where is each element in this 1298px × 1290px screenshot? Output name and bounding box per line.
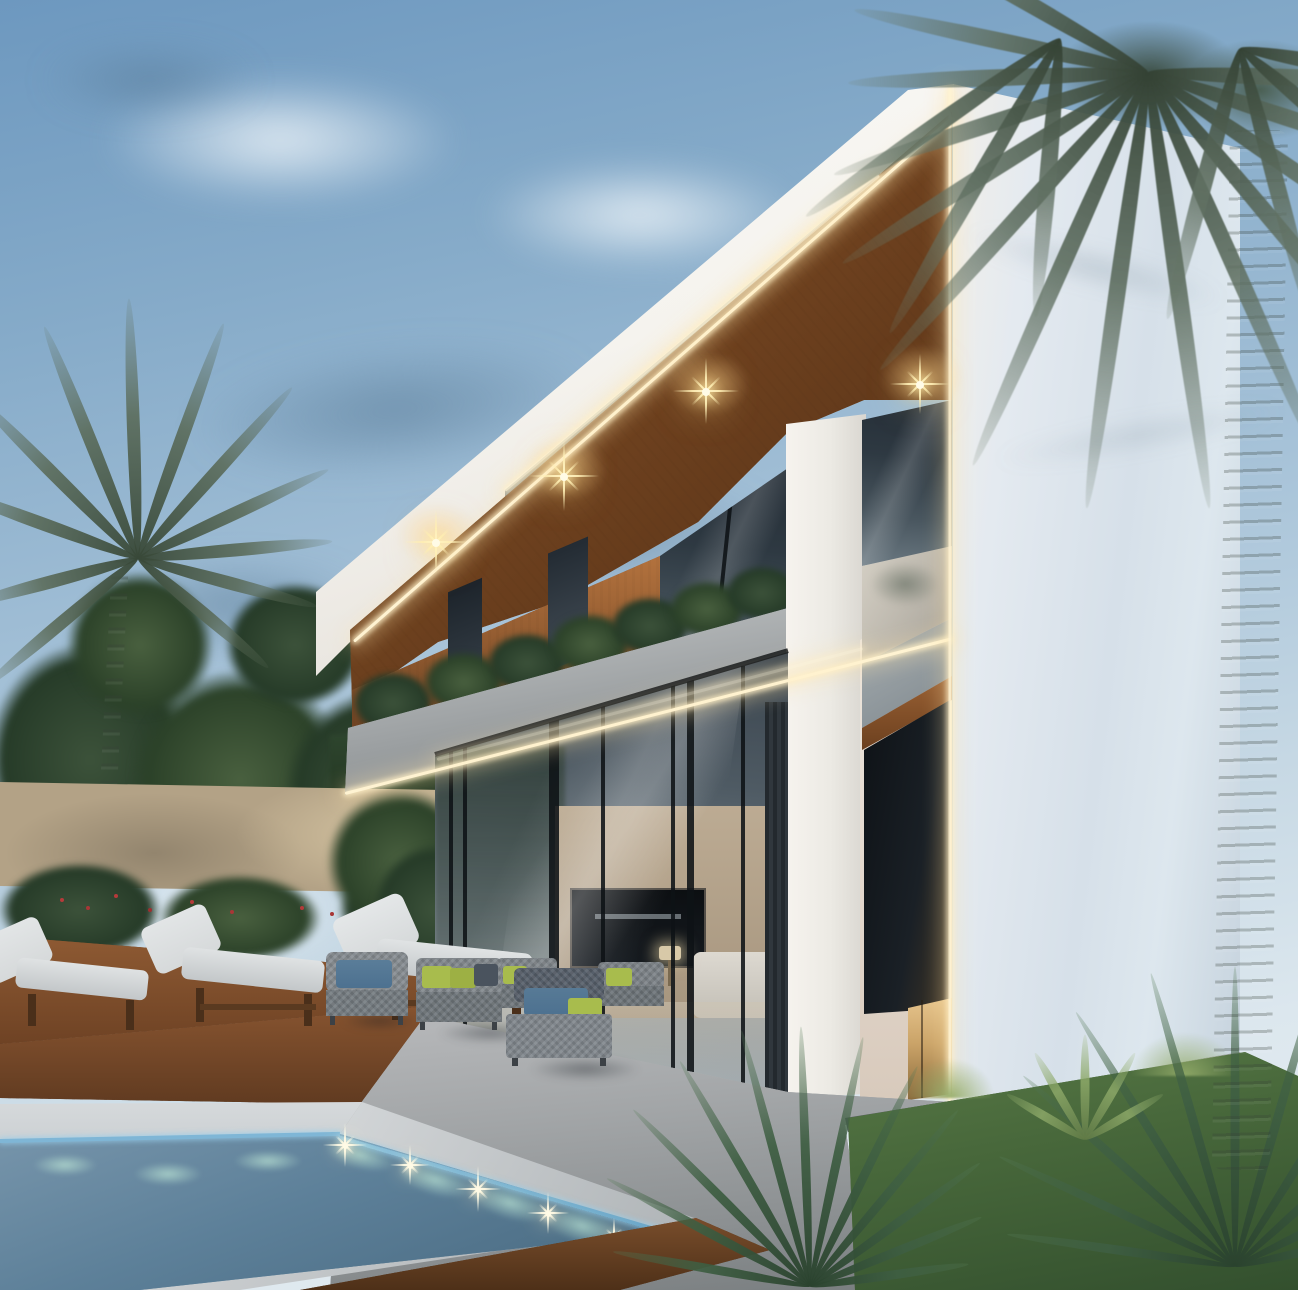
outdoor-armchair [326,952,408,1024]
cloud [0,30,300,130]
pool-light [120,1158,216,1190]
sun-lounger [140,908,335,1036]
column [786,414,866,1100]
soffit-glow [396,503,480,567]
red-flowers [60,898,64,902]
bay-upper-glass [862,398,952,568]
led-strip-corner [949,88,952,1102]
outdoor-sofa [416,958,502,1028]
pool-light [20,1150,110,1180]
soffit-glow [666,352,750,416]
outdoor-cube-chair [506,968,612,1066]
bay-tall-window [864,700,952,1016]
rendering-canvas [0,0,1298,1290]
grass-tuft [905,1058,995,1098]
sun-lounger [0,920,156,1040]
soffit-glow [524,437,608,501]
pool-light [220,1146,316,1176]
